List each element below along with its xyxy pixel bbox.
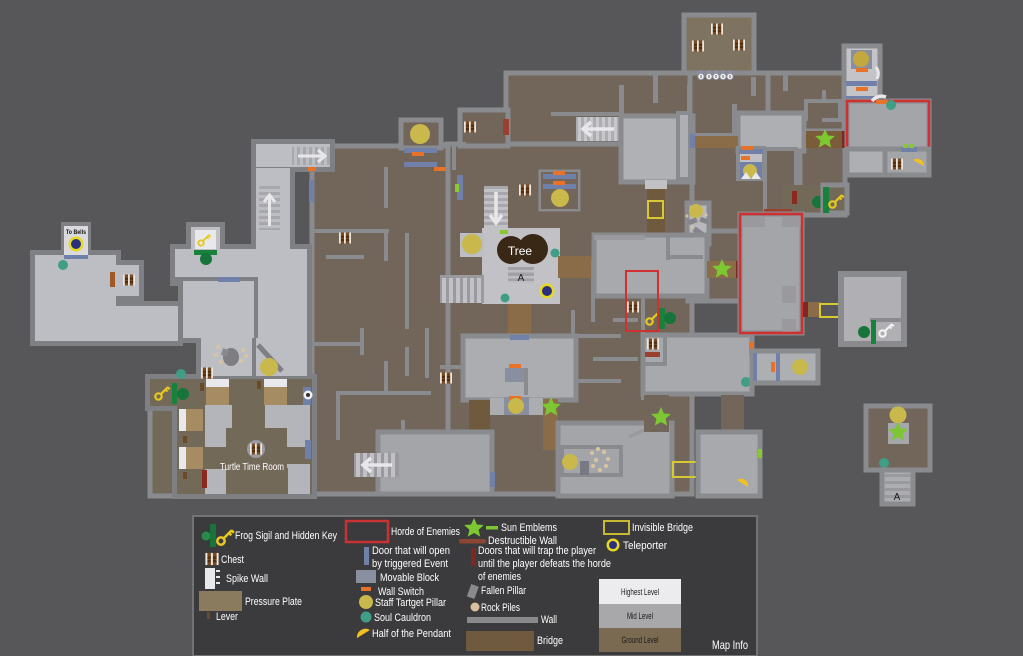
- svg-text:Lever: Lever: [216, 611, 238, 623]
- svg-text:Movable Block: Movable Block: [380, 572, 439, 584]
- svg-text:by triggered Event: by triggered Event: [372, 558, 448, 570]
- svg-text:Horde of Enemies: Horde of Enemies: [391, 526, 460, 538]
- svg-text:A: A: [518, 273, 525, 284]
- svg-text:Fallen Pillar: Fallen Pillar: [481, 585, 526, 597]
- svg-text:Highest Level: Highest Level: [621, 587, 659, 597]
- svg-text:Doors that will trap the playe: Doors that will trap the player: [478, 545, 596, 557]
- svg-text:Chest: Chest: [221, 554, 244, 566]
- svg-text:Rock Piles: Rock Piles: [481, 602, 520, 614]
- svg-text:A: A: [894, 492, 901, 503]
- svg-text:Mid Level: Mid Level: [627, 611, 653, 621]
- svg-text:of enemies: of enemies: [478, 571, 521, 583]
- svg-text:Door that will open: Door that will open: [372, 545, 450, 557]
- svg-text:Sun Emblems: Sun Emblems: [501, 522, 557, 534]
- svg-text:until the player defeats the h: until the player defeats the horde: [478, 558, 611, 570]
- svg-text:Map Info: Map Info: [712, 638, 748, 652]
- svg-text:Bridge: Bridge: [537, 635, 563, 647]
- svg-text:Staff Tartget Pillar: Staff Tartget Pillar: [375, 597, 446, 609]
- svg-text:Spike Wall: Spike Wall: [226, 573, 268, 585]
- svg-text:Teleporter: Teleporter: [623, 540, 667, 552]
- svg-text:Tree: Tree: [508, 244, 533, 258]
- svg-text:Soul Cauldron: Soul Cauldron: [374, 612, 431, 624]
- svg-text:To Bells: To Bells: [66, 229, 86, 236]
- svg-text:Pressure Plate: Pressure Plate: [245, 596, 302, 608]
- svg-text:Ground Level: Ground Level: [622, 635, 659, 645]
- svg-text:Wall: Wall: [541, 614, 557, 626]
- svg-text:Half of the Pendant: Half of the Pendant: [372, 628, 451, 640]
- svg-text:Frog Sigil and Hidden Key: Frog Sigil and Hidden Key: [235, 530, 337, 542]
- svg-text:Invisible Bridge: Invisible Bridge: [632, 522, 693, 534]
- svg-text:Turtle Time Room: Turtle Time Room: [220, 462, 284, 473]
